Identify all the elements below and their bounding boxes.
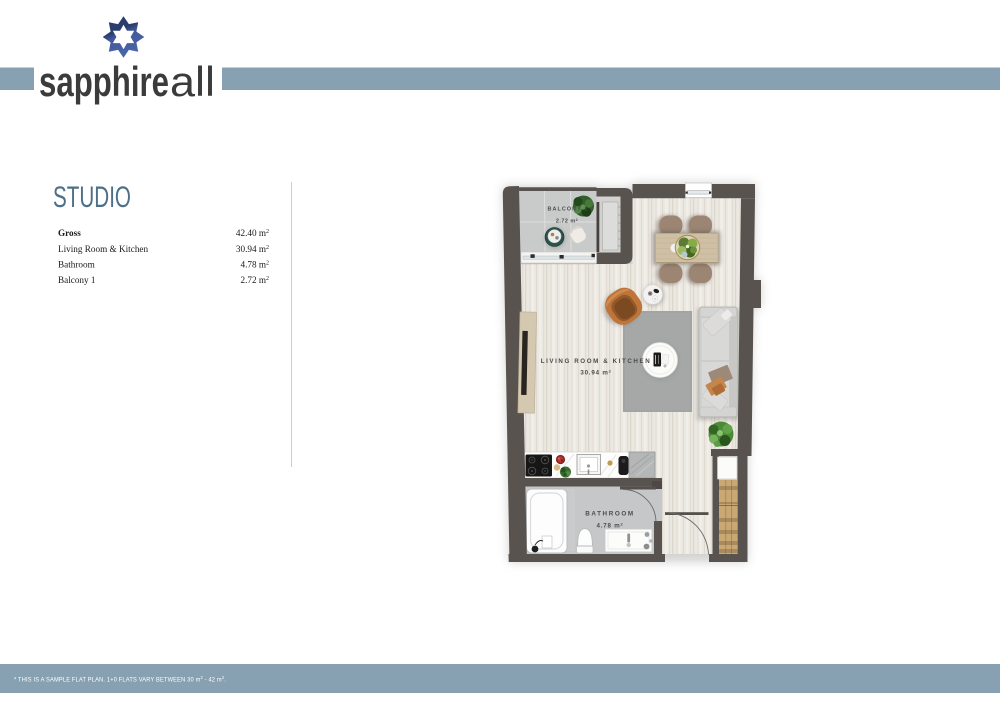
- svg-text:30.94 m2: 30.94 m2: [580, 369, 611, 377]
- svg-text:BATHROOM: BATHROOM: [585, 511, 634, 518]
- svg-text:2.72 m2: 2.72 m2: [556, 218, 578, 225]
- svg-text:Balcony 1: Balcony 1: [58, 275, 96, 285]
- svg-text:30.94 m2: 30.94 m2: [236, 244, 269, 254]
- svg-text:4.78 m2: 4.78 m2: [596, 522, 623, 530]
- svg-text:all: all: [170, 58, 215, 105]
- svg-text:LIVING ROOM & KITCHEN: LIVING ROOM & KITCHEN: [541, 358, 652, 365]
- svg-text:42.40 m2: 42.40 m2: [236, 228, 269, 238]
- svg-text:sapphire: sapphire: [39, 58, 169, 105]
- svg-text:4.78 m2: 4.78 m2: [240, 260, 269, 270]
- svg-text:BALCONY 1: BALCONY 1: [548, 207, 589, 213]
- svg-text:* THIS IS A SAMPLE FLAT PLAN.: * THIS IS A SAMPLE FLAT PLAN. 1+0 FLATS …: [14, 675, 226, 684]
- svg-text:STUDIO: STUDIO: [53, 181, 131, 214]
- svg-text:Bathroom: Bathroom: [58, 260, 95, 270]
- svg-text:Gross: Gross: [58, 228, 81, 238]
- svg-text:Living Room & Kitchen: Living Room & Kitchen: [58, 244, 148, 254]
- svg-text:2.72 m2: 2.72 m2: [240, 275, 269, 285]
